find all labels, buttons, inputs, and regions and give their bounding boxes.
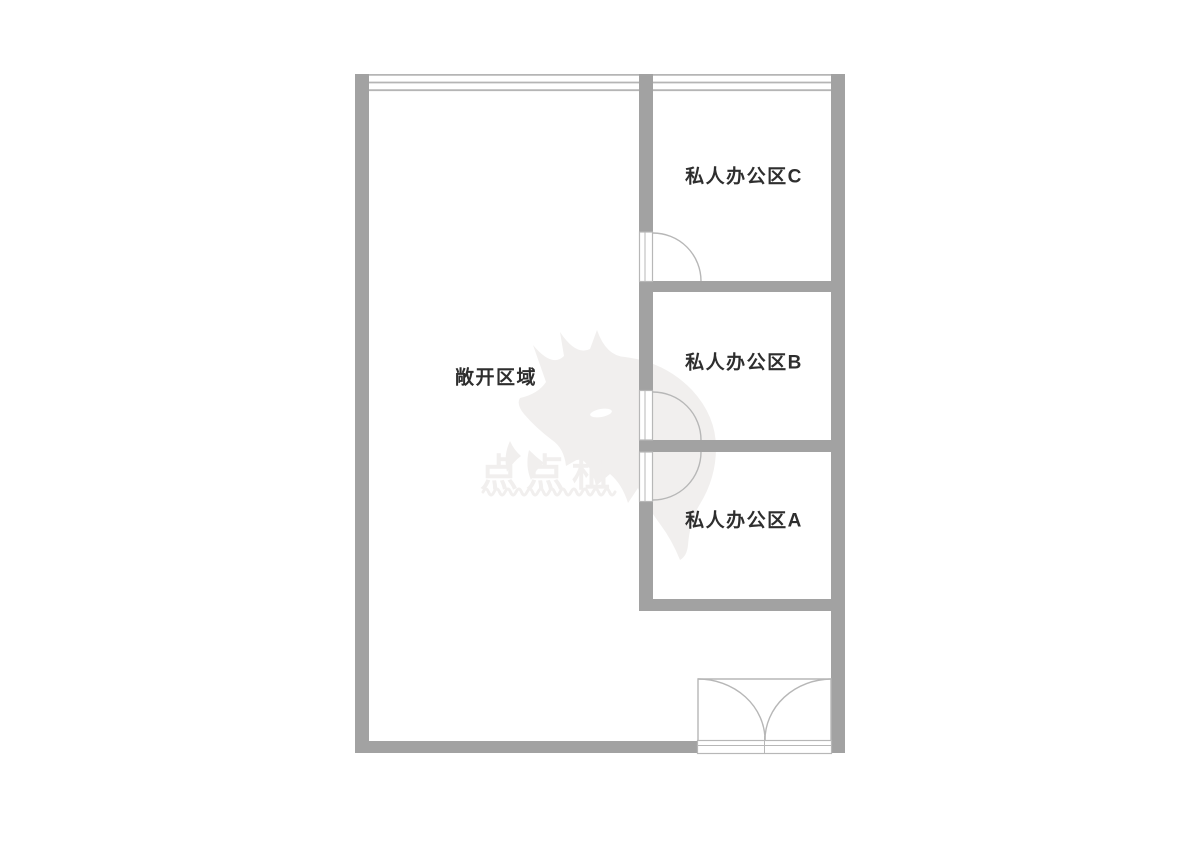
wall-divider-bottom (639, 501, 653, 611)
double-door-left-arc-icon (698, 679, 765, 740)
wall-between-b-and-a (639, 440, 831, 452)
double-door-right-arc-icon (765, 679, 831, 740)
top-exterior-window (369, 75, 831, 90)
wall-divider-top (639, 74, 653, 232)
room-label-private-office-b: 私人办公区B (685, 348, 803, 375)
wall-bottom (355, 741, 698, 753)
wall-a-bottom (639, 599, 831, 611)
main-entrance-double-door (698, 679, 832, 754)
office-c-swing-door (640, 232, 702, 282)
floor-plan-page: 点点租 (0, 0, 1200, 860)
floor-plan-canvas: 点点租 (0, 0, 1200, 860)
open-area-label: 敞开区域 (455, 363, 537, 390)
room-label-private-office-c: 私人办公区C (685, 162, 803, 189)
door-swing-arc-icon (653, 233, 701, 281)
door-leaf-icon (640, 452, 653, 502)
wall-between-c-and-b (639, 281, 831, 292)
wall-divider-middle (639, 281, 653, 392)
wall-left (355, 74, 369, 753)
wall-right (831, 74, 845, 753)
door-leaf-icon (640, 391, 653, 441)
door-leaf-icon (640, 232, 653, 282)
room-label-private-office-a: 私人办公区A (685, 506, 803, 533)
